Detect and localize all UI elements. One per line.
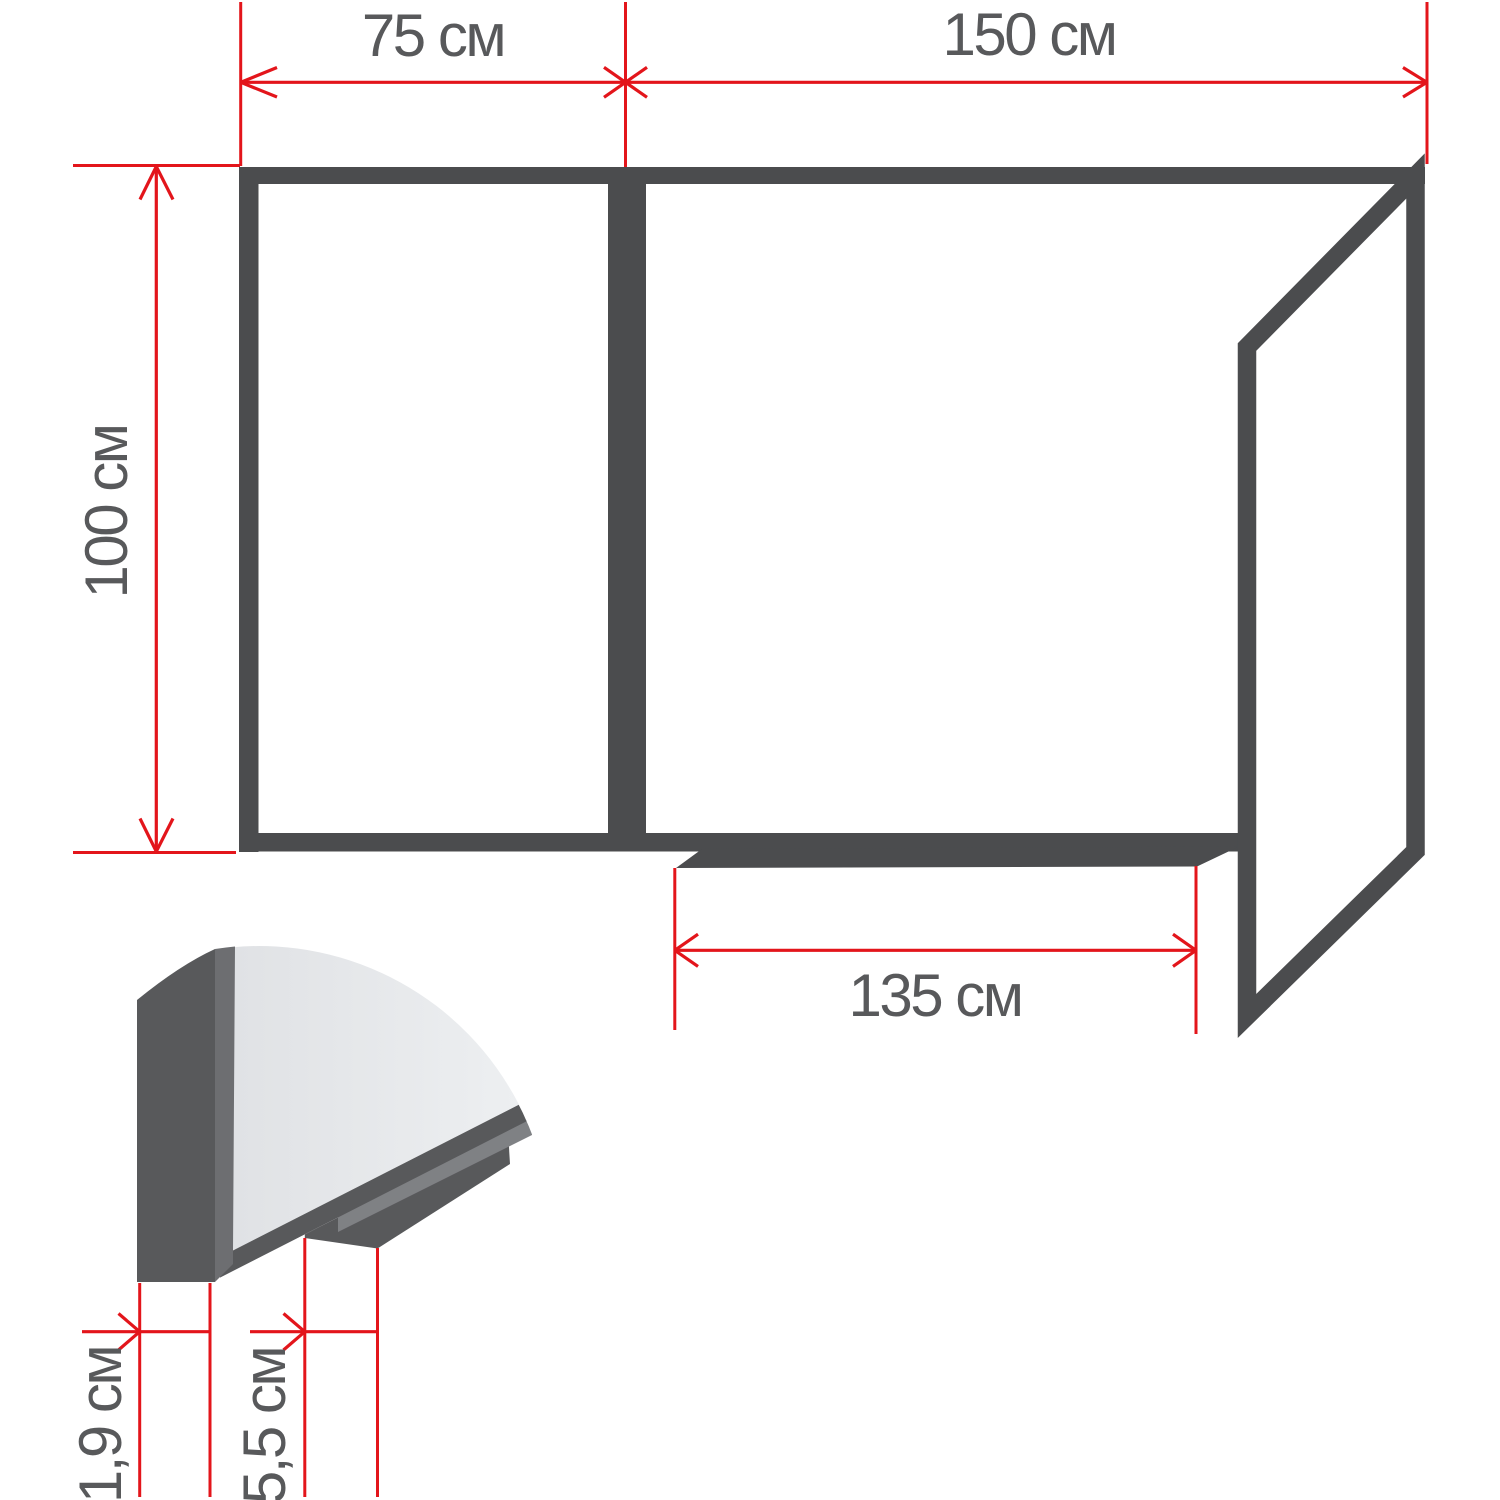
- svg-text:150 см: 150 см: [942, 1, 1115, 68]
- svg-text:75 см: 75 см: [362, 2, 504, 69]
- svg-text:100 см: 100 см: [73, 425, 140, 598]
- svg-text:5,5 см: 5,5 см: [231, 1348, 298, 1500]
- svg-text:135 см: 135 см: [848, 962, 1021, 1029]
- svg-text:1,9 см: 1,9 см: [67, 1347, 134, 1500]
